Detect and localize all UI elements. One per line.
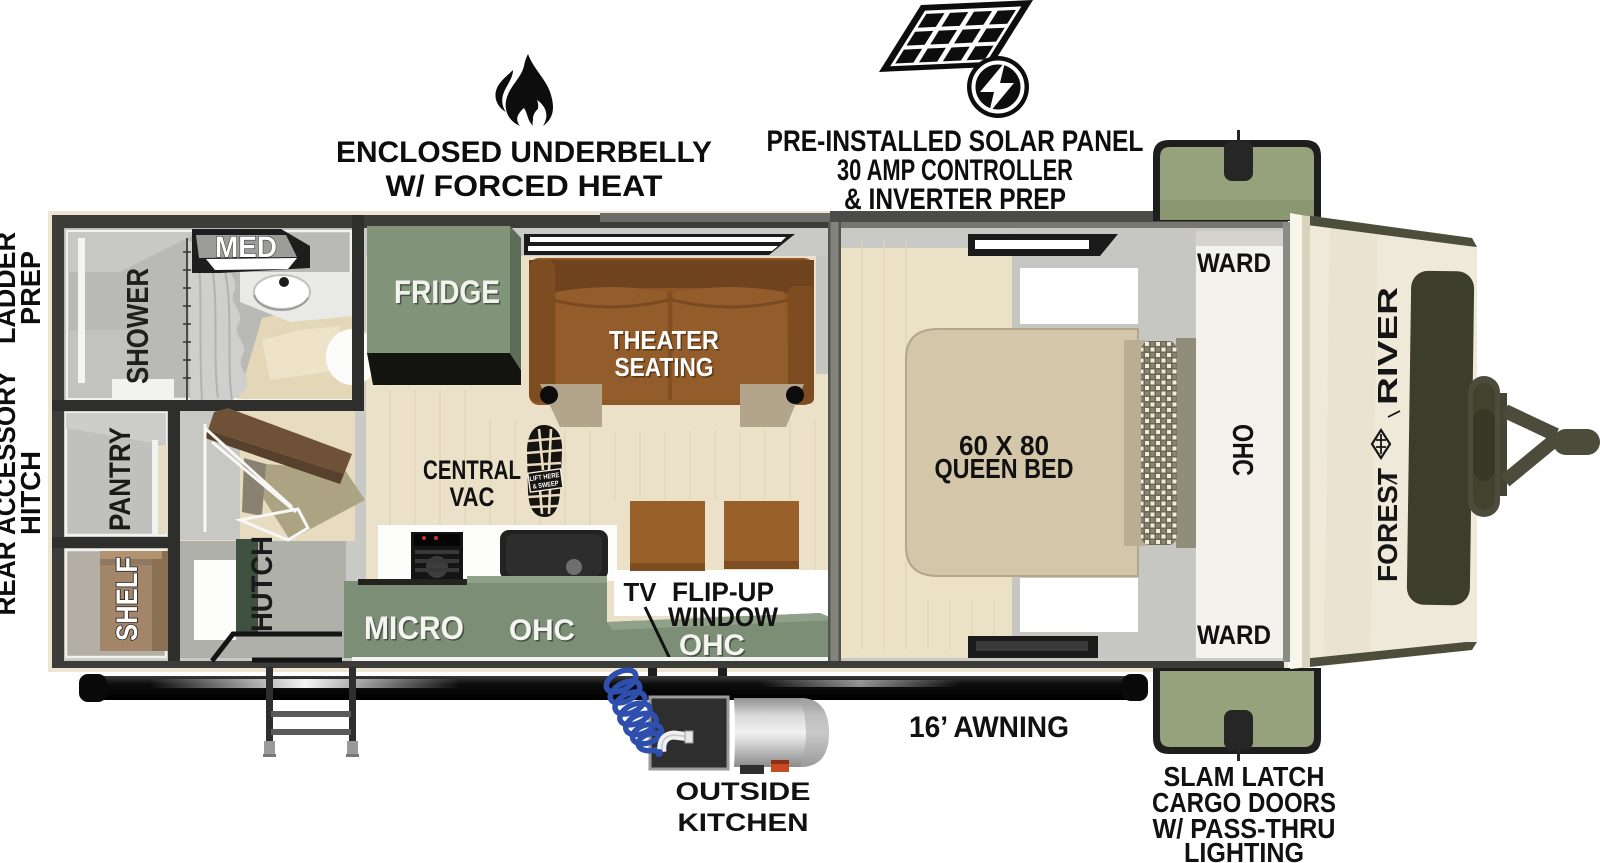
svg-text:HUTCH: HUTCH bbox=[246, 536, 279, 632]
svg-text:HITCH: HITCH bbox=[15, 451, 46, 535]
svg-text:SEATING: SEATING bbox=[615, 352, 714, 382]
svg-text:WINDOW: WINDOW bbox=[668, 602, 778, 632]
svg-text:THEATER: THEATER bbox=[609, 325, 719, 355]
svg-text:MICRO: MICRO bbox=[364, 610, 464, 646]
svg-text:PREP: PREP bbox=[15, 251, 46, 325]
svg-text:OHC: OHC bbox=[509, 614, 575, 647]
svg-text:ENCLOSED UNDERBELLY: ENCLOSED UNDERBELLY bbox=[336, 136, 712, 169]
svg-text:OUTSIDE: OUTSIDE bbox=[676, 778, 811, 806]
svg-text:KITCHEN: KITCHEN bbox=[678, 809, 809, 837]
svg-text:PANTRY: PANTRY bbox=[104, 427, 137, 531]
svg-text:W/ FORCED HEAT: W/ FORCED HEAT bbox=[386, 170, 663, 203]
svg-text:VAC: VAC bbox=[450, 482, 495, 512]
svg-text:LIGHTING: LIGHTING bbox=[1184, 837, 1304, 863]
svg-text:FOREST: FOREST bbox=[1372, 468, 1403, 582]
svg-text:QUEEN BED: QUEEN BED bbox=[935, 453, 1074, 484]
svg-text:SHELF: SHELF bbox=[111, 557, 144, 641]
svg-text:RIVER: RIVER bbox=[1372, 287, 1403, 405]
svg-text:SHOWER: SHOWER bbox=[120, 268, 155, 384]
svg-text:CENTRAL: CENTRAL bbox=[423, 455, 521, 485]
svg-text:OHC: OHC bbox=[1226, 424, 1258, 476]
svg-text:FRIDGE: FRIDGE bbox=[394, 274, 500, 310]
svg-text:16’ AWNING: 16’ AWNING bbox=[909, 711, 1069, 744]
svg-text:WARD: WARD bbox=[1197, 620, 1271, 650]
svg-text:WARD: WARD bbox=[1197, 248, 1271, 278]
svg-text:MED: MED bbox=[215, 231, 277, 264]
svg-text:TV: TV bbox=[624, 577, 658, 607]
